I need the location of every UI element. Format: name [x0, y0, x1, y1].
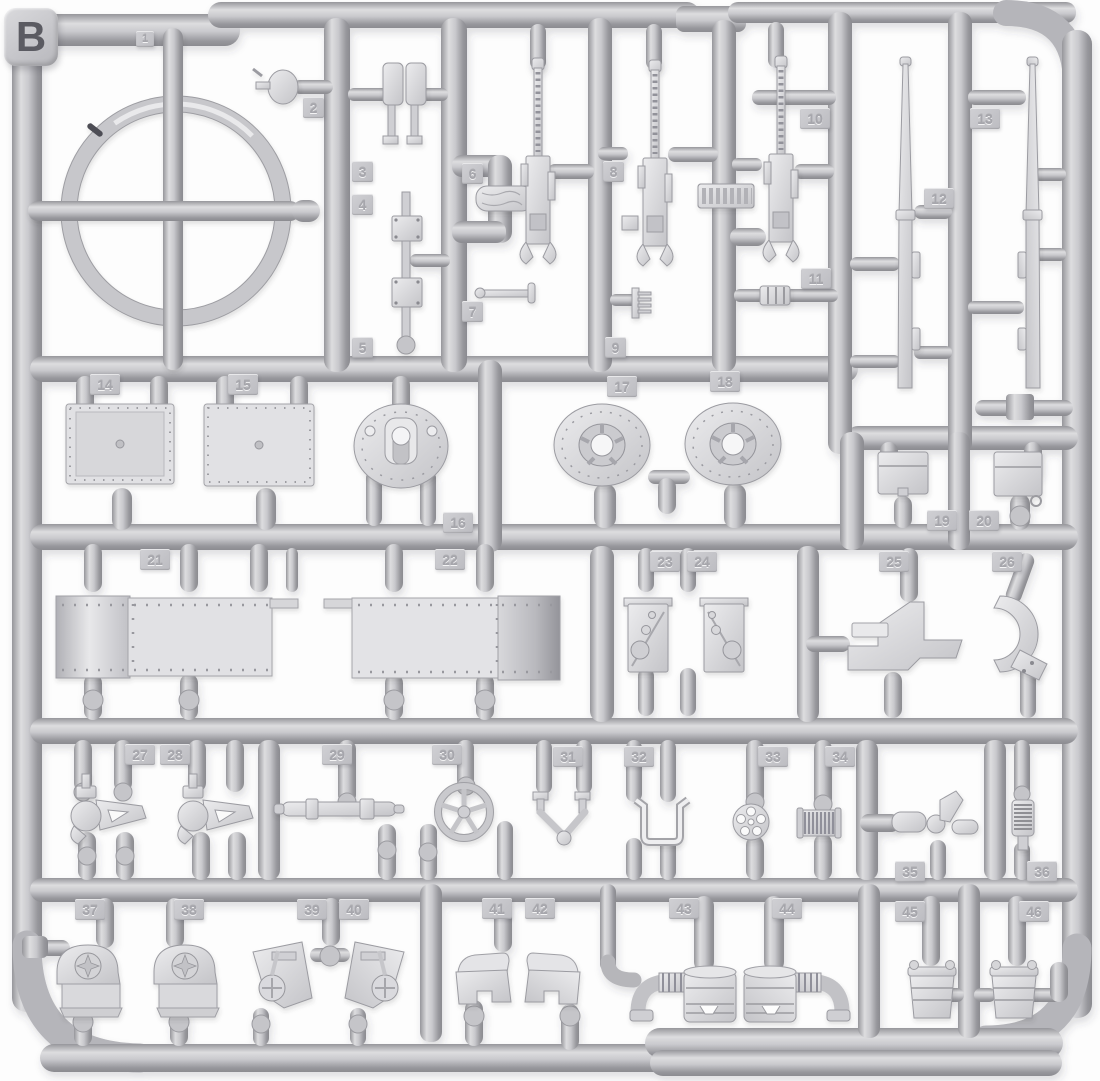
- drive-housing-38: [154, 945, 219, 1017]
- part-tag-4: 4: [352, 194, 373, 215]
- part-tag-1: 1: [136, 31, 154, 47]
- part-shape-ammo-clip: [622, 216, 638, 230]
- gun-barrel-13: [1018, 57, 1042, 388]
- part-tag-29: 29: [322, 744, 352, 765]
- drive-housing-37: [57, 945, 122, 1017]
- part-shape-hatch-14: [66, 404, 174, 484]
- part-tag-27: 27: [125, 744, 155, 765]
- part-shape-log-piece: [476, 186, 533, 211]
- part-shape-plate-bracket-25: [848, 602, 962, 670]
- part-tag-34: 34: [825, 746, 855, 767]
- part-shape-ribbed-drum: [797, 808, 841, 838]
- part-shape-stowage-box-19: [878, 452, 928, 496]
- part-tag-38: 38: [174, 899, 204, 920]
- part-shape-sight-tube: [274, 799, 404, 819]
- cradle-27: [71, 774, 146, 844]
- part-shape-valve-knob: [253, 69, 298, 104]
- fuel-drum-45: [908, 961, 956, 1019]
- part-tag-24: 24: [687, 551, 717, 572]
- fuel-drum-46: [990, 961, 1038, 1019]
- machine-gun-1: [520, 58, 556, 264]
- part-tag-32: 32: [624, 746, 654, 767]
- part-tag-43: 43: [669, 898, 699, 919]
- part-tag-11: 11: [801, 268, 831, 289]
- dial-bracket-40: [345, 942, 404, 1008]
- fender-guard-41: [456, 953, 511, 1004]
- part-shape-mg-mount-17: [554, 404, 650, 486]
- sprue-photo: B 1 2 3 4 5 6 7 8 9 10 11 12 13 14 15 16…: [0, 0, 1100, 1081]
- part-tag-7: 7: [462, 301, 483, 322]
- part-tag-26: 26: [992, 551, 1022, 572]
- fender-guard-42: [525, 953, 580, 1004]
- part-shape-crescent-clamp: [994, 596, 1047, 680]
- part-tag-30: 30: [432, 744, 462, 765]
- part-tag-6: 6: [462, 163, 483, 184]
- part-tag-12: 12: [924, 188, 954, 209]
- part-tag-28: 28: [160, 744, 190, 765]
- part-tag-19: 19: [927, 510, 957, 531]
- part-shape-u-bracket: [636, 800, 688, 842]
- machine-gun-2: [637, 60, 673, 266]
- part-tag-8: 8: [603, 161, 624, 182]
- part-shape-periscope-pair: [383, 63, 426, 144]
- part-tag-44: 44: [772, 898, 802, 919]
- part-shape-coil-spring: [1012, 800, 1034, 850]
- part-tag-21: 21: [140, 549, 170, 570]
- part-shape-armor-plate-22: [324, 596, 560, 680]
- part-tag-10: 10: [800, 108, 830, 129]
- part-shape-bracket-24: [700, 598, 748, 672]
- part-shape-mg-mount-18: [685, 403, 781, 485]
- part-tag-5: 5: [352, 337, 373, 358]
- part-tag-25: 25: [879, 551, 909, 572]
- part-tag-13: 13: [970, 108, 1000, 129]
- part-tag-15: 15: [228, 374, 258, 395]
- part-shape-lever-assembly: [892, 791, 978, 834]
- part-tag-14: 14: [90, 374, 120, 395]
- part-tag-23: 23: [650, 551, 680, 572]
- part-tag-42: 42: [525, 898, 555, 919]
- air-cleaner-43: [630, 966, 736, 1022]
- part-tag-46: 46: [1019, 901, 1049, 922]
- part-tag-33: 33: [758, 746, 788, 767]
- part-tag-39: 39: [297, 899, 327, 920]
- part-shape-charging-handle: [475, 283, 535, 303]
- part-tag-2: 2: [303, 97, 324, 118]
- part-tag-16: 16: [443, 512, 473, 533]
- part-shape-mount-blocks: [392, 192, 422, 354]
- part-shape-ammo-belt-box: [698, 184, 754, 208]
- part-tag-3: 3: [352, 161, 373, 182]
- part-tag-36: 36: [1027, 861, 1057, 882]
- part-shape-barrel-collar: [760, 286, 790, 305]
- part-tag-45: 45: [895, 901, 925, 922]
- part-shape-spoked-wheel: [733, 804, 769, 840]
- part-shape-dome-mount: [354, 404, 448, 488]
- part-tag-35: 35: [895, 861, 925, 882]
- sprue-letter-tab: B: [4, 8, 58, 66]
- part-shape-yoke-fork: [533, 792, 590, 845]
- part-tag-31: 31: [553, 746, 583, 767]
- part-tag-22: 22: [435, 549, 465, 570]
- part-shape-handwheel: [435, 783, 494, 842]
- machine-gun-3: [763, 56, 799, 262]
- part-shape-bracket-23: [624, 598, 672, 672]
- gun-barrel-12: [896, 57, 920, 388]
- part-shape-hatch-15: [204, 404, 314, 486]
- part-shape-ammo-belt-end: [632, 288, 651, 318]
- part-tag-18: 18: [710, 371, 740, 392]
- part-shape-center-joint: [310, 946, 350, 966]
- sprue-letter: B: [16, 13, 46, 61]
- part-tag-40: 40: [339, 899, 369, 920]
- dial-bracket-39: [253, 942, 312, 1008]
- part-tag-20: 20: [969, 510, 999, 531]
- part-tag-9: 9: [605, 337, 626, 358]
- part-tag-37: 37: [75, 899, 105, 920]
- part-tag-41: 41: [482, 898, 512, 919]
- part-tag-17: 17: [607, 376, 637, 397]
- air-cleaner-44: [744, 966, 850, 1022]
- part-shape-armor-plate-21: [56, 596, 298, 678]
